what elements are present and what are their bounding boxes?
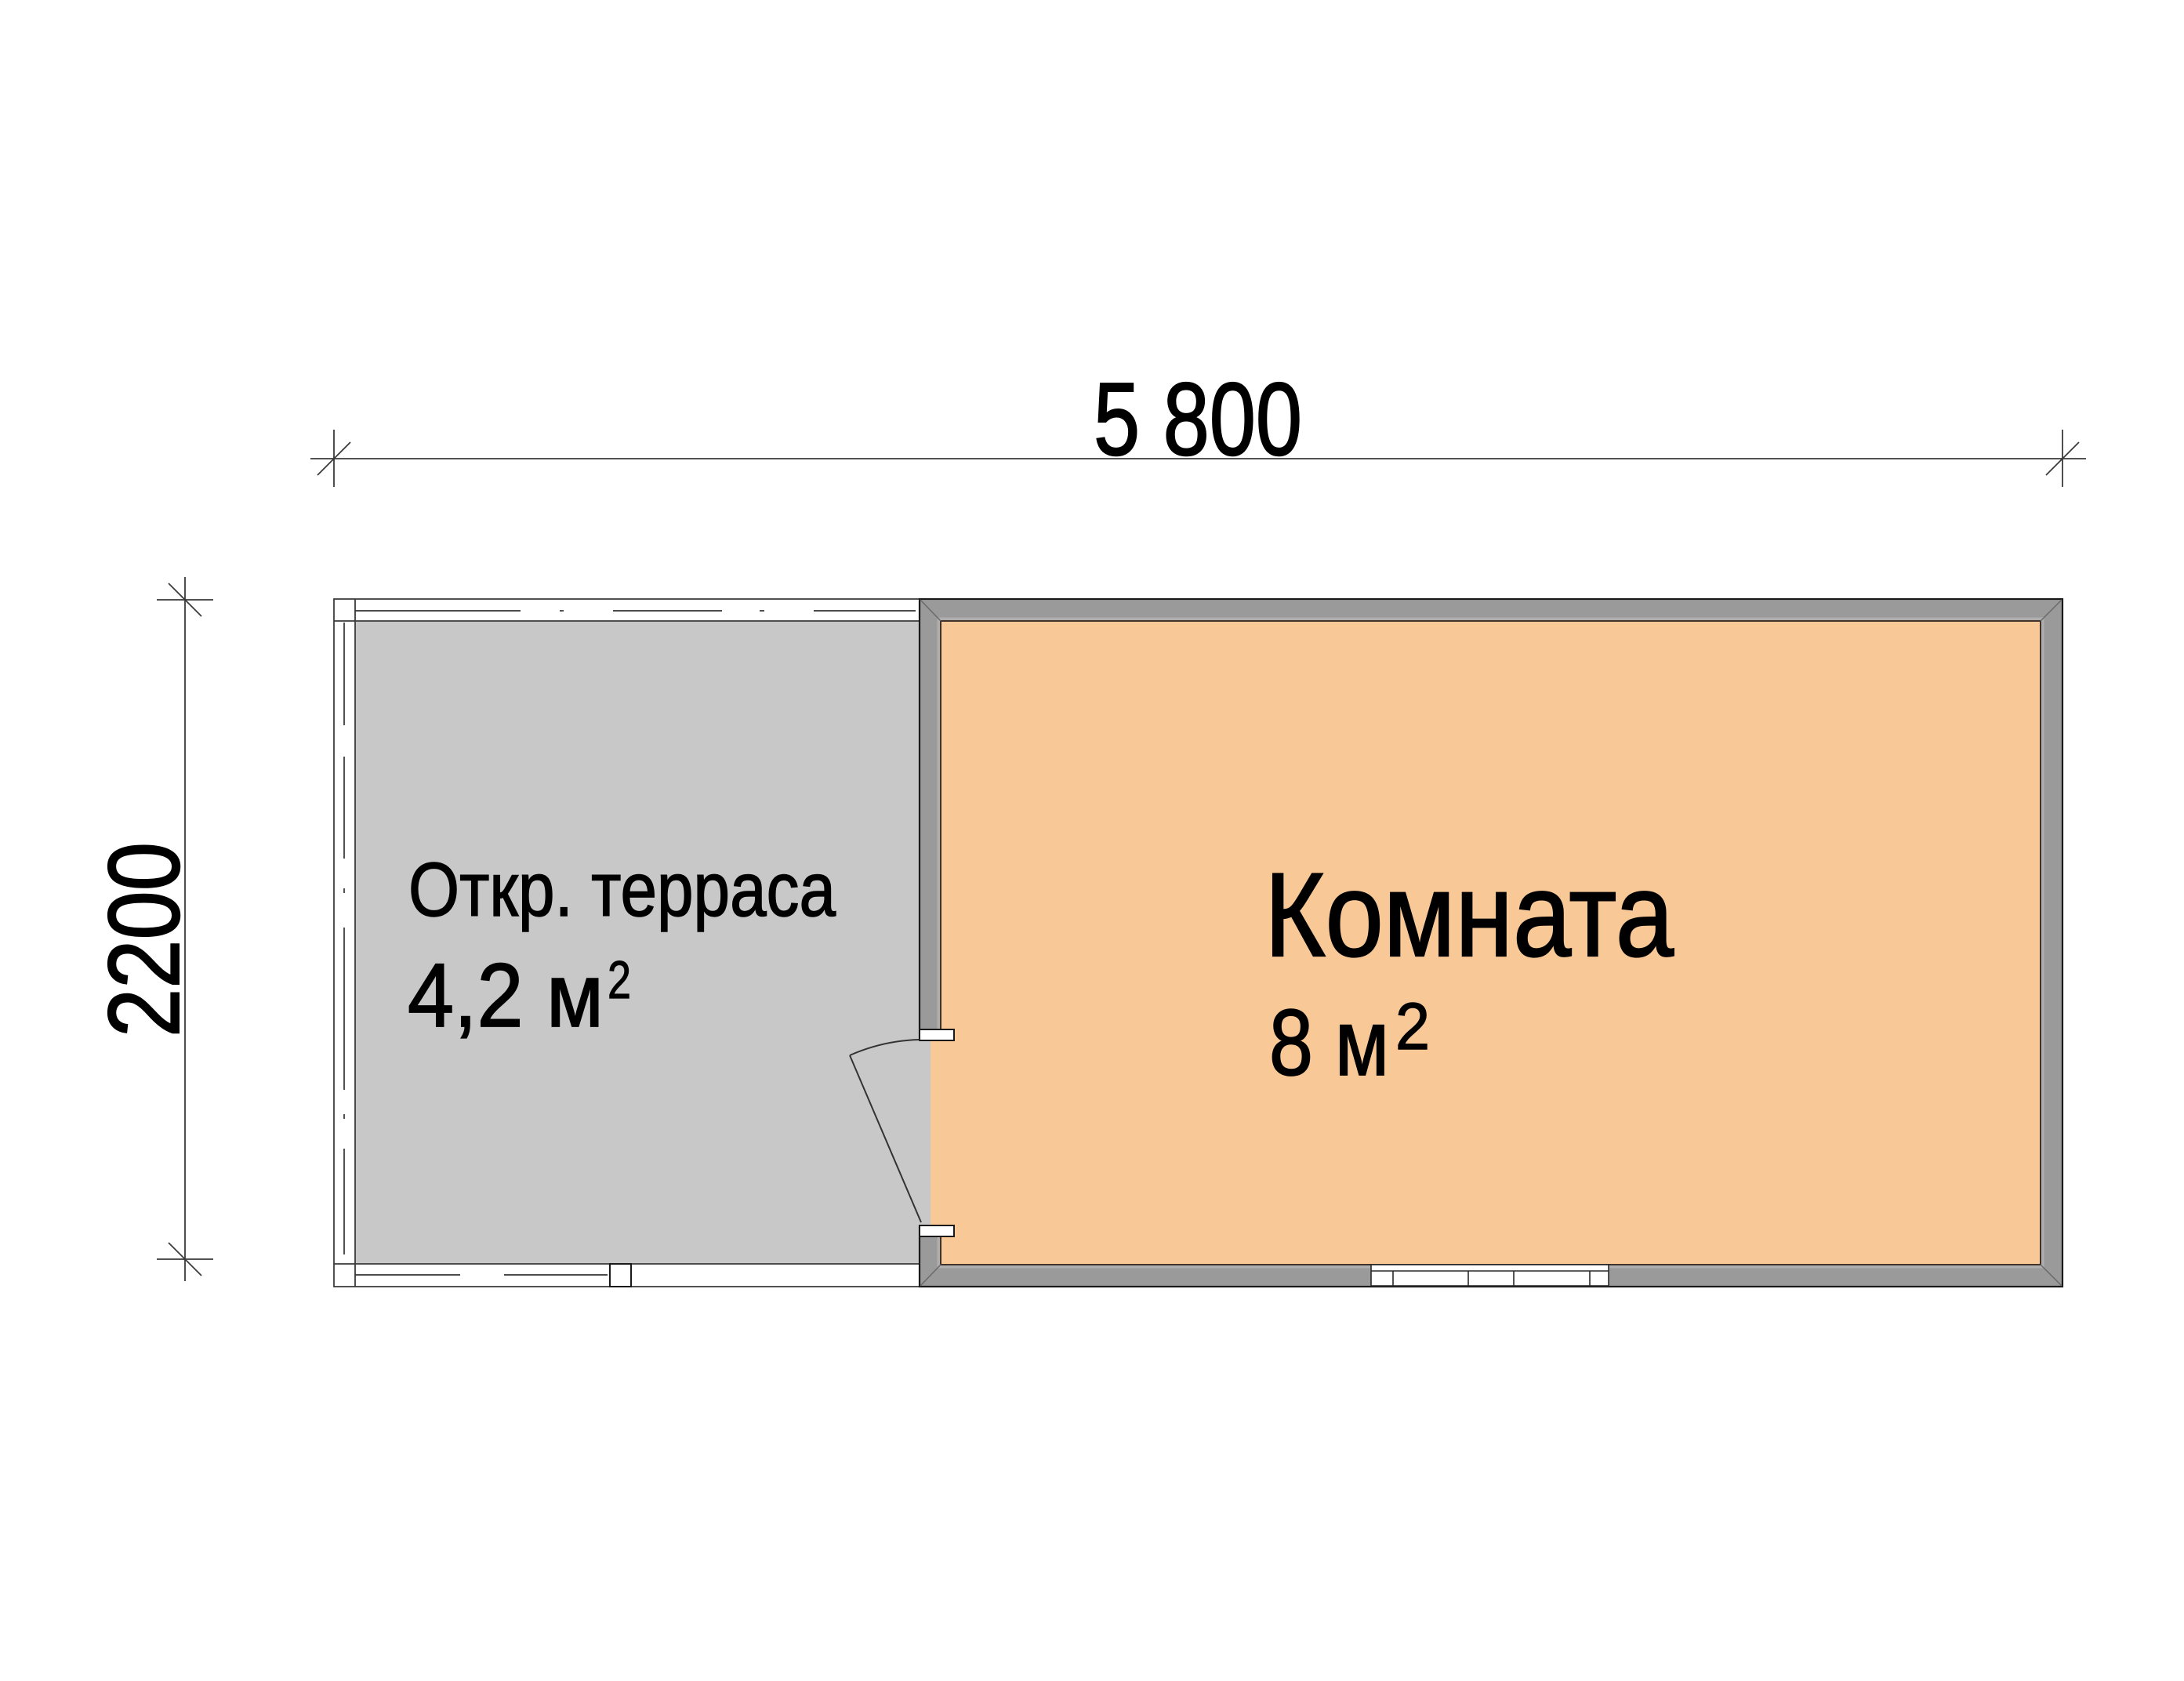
svg-text:Откр. терраса: Откр. терраса (408, 847, 836, 932)
svg-text:2200: 2200 (88, 842, 201, 1037)
svg-text:8 м: 8 м (1269, 990, 1389, 1095)
svg-text:4,2 м: 4,2 м (408, 946, 604, 1046)
svg-text:2: 2 (1395, 989, 1430, 1063)
svg-text:Комната: Комната (1264, 848, 1674, 982)
svg-text:2: 2 (608, 950, 631, 1010)
svg-text:5 800: 5 800 (1094, 361, 1302, 477)
